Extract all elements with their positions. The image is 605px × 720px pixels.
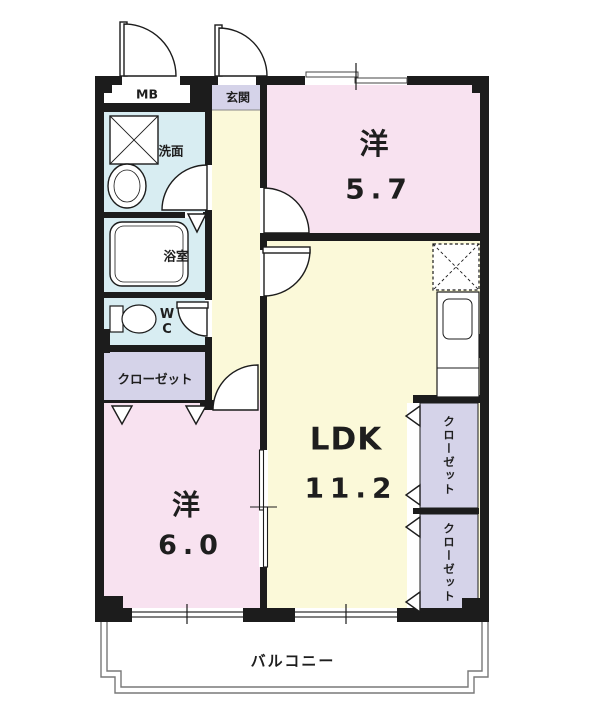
bathroom-label: 浴室 bbox=[163, 249, 188, 262]
wall-bath-wc bbox=[104, 292, 212, 298]
wall-segment bbox=[260, 85, 267, 188]
ldk-door-leaf bbox=[263, 247, 310, 253]
floor-plan-drawing bbox=[0, 0, 605, 720]
wall-segment bbox=[243, 608, 295, 622]
wall-bedroom-ldk bbox=[260, 233, 480, 241]
bedroom-top-name: 洋 bbox=[359, 129, 388, 159]
bedroom-top-size: 5.7 bbox=[345, 174, 413, 203]
right-closet-top-label: クローゼット bbox=[443, 416, 455, 497]
sliding-door-panel bbox=[264, 507, 268, 567]
entrance-door-arc bbox=[219, 28, 267, 76]
meter-box-door-arc bbox=[124, 24, 176, 76]
sliding-door-panel bbox=[260, 450, 264, 510]
meter-box-label: MB bbox=[136, 87, 158, 100]
wall-wc-closet bbox=[95, 345, 212, 352]
entrance-label: 玄関 bbox=[226, 92, 250, 105]
wall-segment bbox=[260, 567, 267, 612]
ldk-name: LDK bbox=[310, 424, 383, 457]
toilet-bowl bbox=[122, 305, 156, 333]
wall-segment bbox=[205, 337, 212, 410]
window-top-panel bbox=[306, 72, 358, 77]
washroom-label: 洗面 bbox=[158, 144, 183, 157]
hallway-floor bbox=[212, 110, 267, 410]
wall-pier bbox=[462, 598, 489, 622]
window-top-panel bbox=[355, 78, 407, 83]
bedroom-bottom-name: 洋 bbox=[172, 490, 200, 519]
toilet-tank bbox=[110, 306, 123, 332]
wall-entrance-left bbox=[190, 85, 212, 112]
ldk-size: 11.2 bbox=[304, 473, 397, 502]
wall-washroom-bath bbox=[104, 212, 185, 218]
wall-pier bbox=[95, 76, 112, 93]
wall-pier bbox=[472, 76, 489, 93]
wall-segment bbox=[180, 76, 218, 85]
right-closet-bottom-label: クローゼット bbox=[443, 523, 455, 604]
right-closet-door-strip bbox=[407, 403, 420, 612]
hall-closet-label: クローゼット bbox=[117, 372, 192, 385]
wall-segment bbox=[256, 76, 307, 85]
wall-segment bbox=[260, 295, 267, 450]
wc-door-leaf bbox=[177, 302, 208, 308]
kitchen-sink bbox=[443, 299, 472, 339]
wc-label: W C bbox=[160, 307, 174, 337]
wall-segment bbox=[205, 112, 212, 165]
balcony-label: バルコニー bbox=[251, 654, 336, 670]
wall-segment bbox=[205, 210, 212, 300]
wall-pier bbox=[95, 596, 123, 622]
floor-plan-canvas: MB 玄関 洗面 浴室 W C クローゼット 洋 5.7 LDK 11.2 洋 … bbox=[0, 0, 605, 720]
hall-closet-front-line bbox=[104, 400, 205, 403]
wall-closet-divider bbox=[413, 508, 479, 514]
wall-below-meter-box bbox=[104, 103, 190, 112]
bedroom-bottom-size: 6.0 bbox=[158, 532, 224, 560]
